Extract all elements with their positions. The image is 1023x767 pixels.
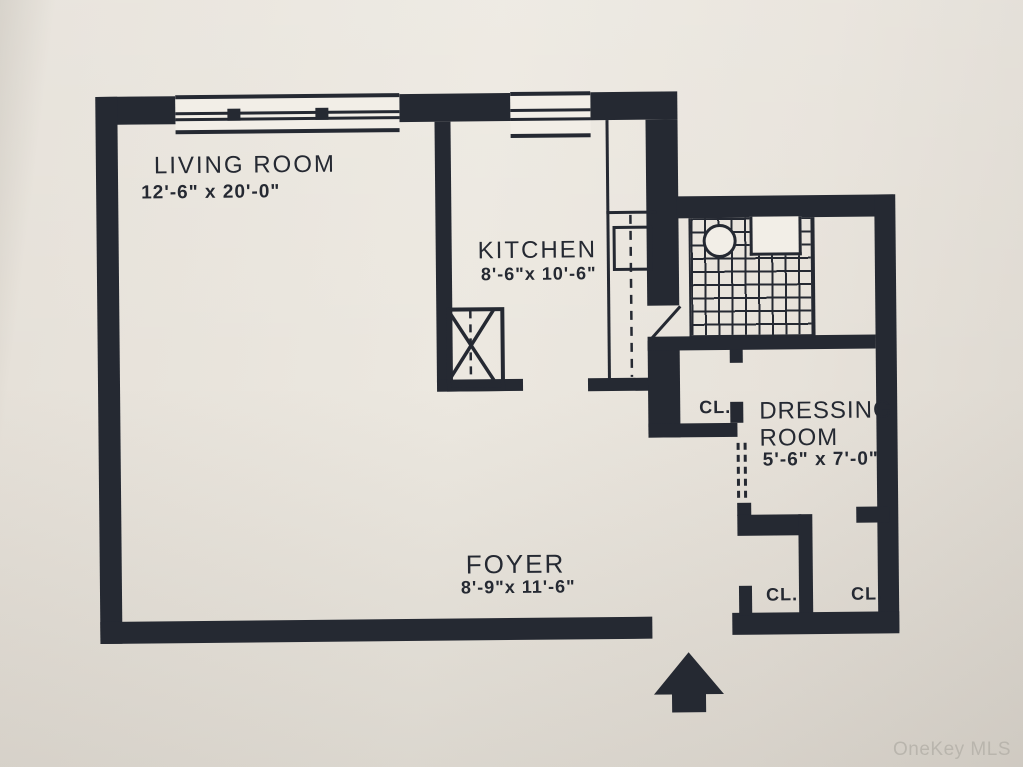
kitchen-counter-shelf-line (606, 211, 656, 214)
kitchen-counter-edge (605, 120, 610, 379)
floor-plan-scan: LIVING ROOM 12'-6" x 20'-0" KITCHEN 8'-6… (0, 0, 1023, 767)
wall-dressing-closet-bottom (648, 423, 737, 438)
bathroom-sink (702, 224, 736, 258)
wall-top-right (590, 91, 677, 120)
accordion-door (745, 443, 746, 501)
wall-right-closet-top (856, 506, 889, 522)
foyer-dimensions: 8'-9"x 11'-6" (461, 576, 576, 598)
kitchen-label: KITCHEN (478, 236, 598, 265)
mls-watermark: OneKey MLS (893, 739, 1011, 761)
closet-label-entry-right: CL. (851, 583, 883, 604)
window-mullion (227, 109, 240, 121)
bathroom-door (650, 306, 680, 339)
living-room-window (175, 93, 399, 134)
window-glazing-line (510, 108, 590, 112)
window-glazing-line (510, 117, 590, 121)
closet-label-entry-left: CL. (766, 584, 798, 605)
floor-plan: LIVING ROOM 12'-6" x 20'-0" KITCHEN 8'-6… (0, 0, 1023, 767)
wall-dressing-closet-jamb-lower (730, 402, 743, 423)
wall-closets-bottom (732, 611, 899, 635)
wall-bottom (100, 617, 652, 644)
wall-bathroom-top (676, 194, 893, 218)
window-mullion (315, 108, 328, 120)
kitchen-window (510, 91, 590, 138)
living-room-dimensions: 12'-6" x 20'-0" (141, 181, 280, 204)
dumbwaiter-shaft (446, 307, 505, 392)
window-glazing-line (175, 110, 399, 115)
wall-top-middle (399, 93, 510, 122)
closet-label-dressing: CL. (699, 397, 731, 418)
entrance-arrow-icon (654, 652, 725, 713)
kitchen-dimensions: 8'-6"x 10'-6" (481, 263, 597, 285)
living-room-label: LIVING ROOM (154, 151, 336, 181)
wall-dressing-closet-jamb-upper (730, 348, 743, 363)
bathroom-toilet (749, 216, 801, 255)
kitchen-appliance (612, 226, 652, 271)
window-glazing-line (175, 116, 399, 121)
dressing-room-dimensions: 5'-6" x 7'-0" (763, 448, 879, 471)
wall-left-closet-top (737, 514, 801, 536)
wall-closet-divider (798, 514, 813, 615)
wall-left-closet-jamb (739, 586, 752, 616)
accordion-door (738, 443, 739, 501)
wall-left (95, 97, 122, 644)
dressing-room-label-line1: DRESSING (759, 396, 893, 425)
